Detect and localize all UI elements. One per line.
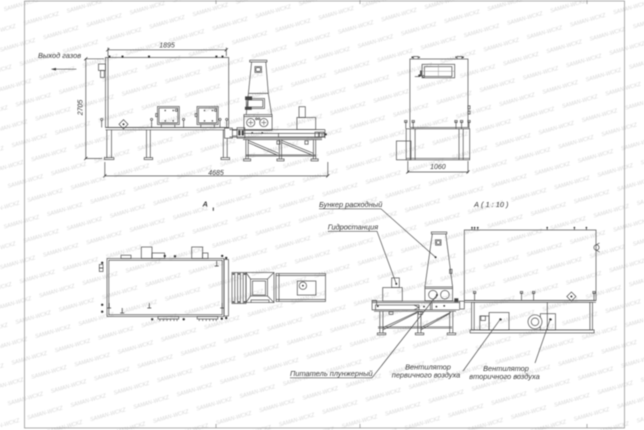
svg-text:2705: 2705 (78, 100, 85, 117)
svg-text:1895: 1895 (159, 43, 175, 50)
svg-text:Питатель плунжерный: Питатель плунжерный (290, 369, 373, 378)
svg-text:Гидростанция: Гидростанция (328, 223, 378, 232)
svg-text:Бункер расходный: Бункер расходный (319, 200, 382, 209)
svg-text:1060: 1060 (430, 164, 446, 171)
svg-text:первичного воздуха: первичного воздуха (392, 371, 460, 380)
svg-text:А: А (202, 200, 208, 209)
svg-text:Выход газов: Выход газов (38, 51, 81, 60)
svg-text:вторичного воздуха: вторичного воздуха (469, 372, 539, 381)
svg-text:А ( 1 : 10 ): А ( 1 : 10 ) (473, 200, 509, 209)
